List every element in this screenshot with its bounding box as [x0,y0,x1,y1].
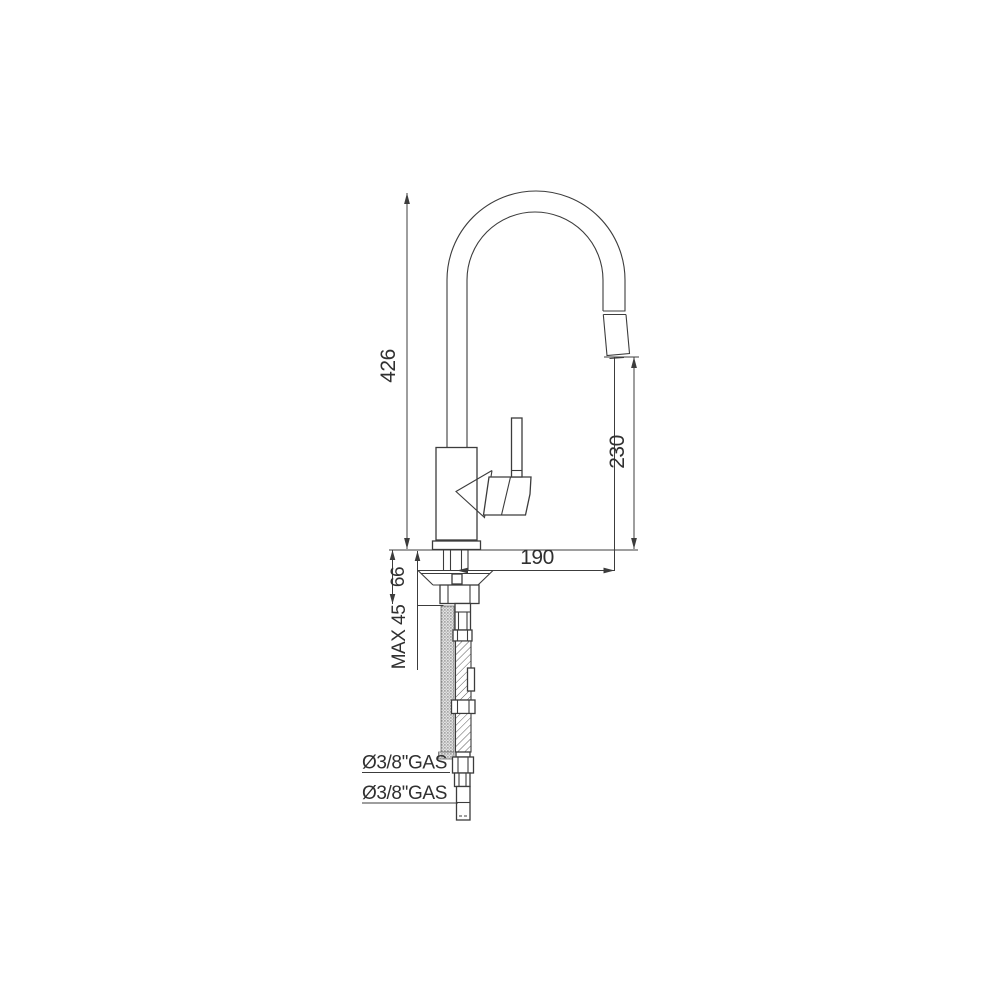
shank-stack [452,604,476,821]
spray-head [603,311,630,359]
spout-outer-arc [447,191,625,280]
supply-hose [457,787,471,821]
dim-230-arrow-bottom [631,538,637,549]
drawing-page: 426 230 190 66 [0,0,1000,1000]
dim-426-arrow-top [404,193,410,204]
dim-66-arrow-top [390,550,396,560]
fixing-plate [418,571,493,604]
plate-left-slant [418,571,433,586]
dimension-total-height: 426 [377,193,410,549]
dimension-outlet-height: 230 [604,357,639,571]
dimension-under-deck: 66 [388,550,409,604]
dim-total-height-label: 426 [377,349,400,383]
spout-inner-arc [467,212,603,280]
shank-collar [453,630,472,641]
dim-max-thickness-label: MAX 45 [389,605,410,670]
dim-outlet-height-label: 230 [606,435,629,469]
inlet-label-top: Ø3/8''GAS [362,753,447,774]
base-flange [433,541,481,550]
dim-190-arrow-right [604,568,615,574]
rod-side-tab [468,668,475,691]
dim-max45-arrow [415,551,421,561]
inlet-label-bottom: Ø3/8''GAS [362,783,447,804]
mounting-hub [440,585,479,604]
dim-230-arrow-top [631,357,637,368]
countertop-section [439,606,455,759]
plate-right-slant [478,571,493,586]
handle-base [484,477,532,515]
shank-neck [456,752,470,757]
threaded-rod-lower [456,714,472,753]
gooseneck-spout [447,191,625,448]
faucet-outline [433,191,630,550]
counter-slab [441,606,454,752]
plate-locating-tab [452,574,462,584]
shank-upper [455,604,471,631]
body-cylinder [436,448,477,541]
inlet-labels: Ø3/8''GAS Ø3/8''GAS [362,753,458,805]
dim-spout-reach-label: 190 [520,546,554,569]
faucet-technical-drawing: 426 230 190 66 [0,0,1000,1000]
hose-hex-nut [453,757,474,773]
dim-426-arrow-bottom [404,538,410,549]
dim-190-arrow-left [457,568,468,574]
dim-66-arrow-bottom [390,594,396,604]
spray-head-body [603,315,629,356]
handle-lever [512,418,523,477]
spray-head-nozzle [610,358,625,359]
hose-ferrule [455,773,471,787]
mounting-assembly [418,550,493,820]
fixing-nut [452,700,476,714]
dim-under-deck-label: 66 [388,567,409,587]
